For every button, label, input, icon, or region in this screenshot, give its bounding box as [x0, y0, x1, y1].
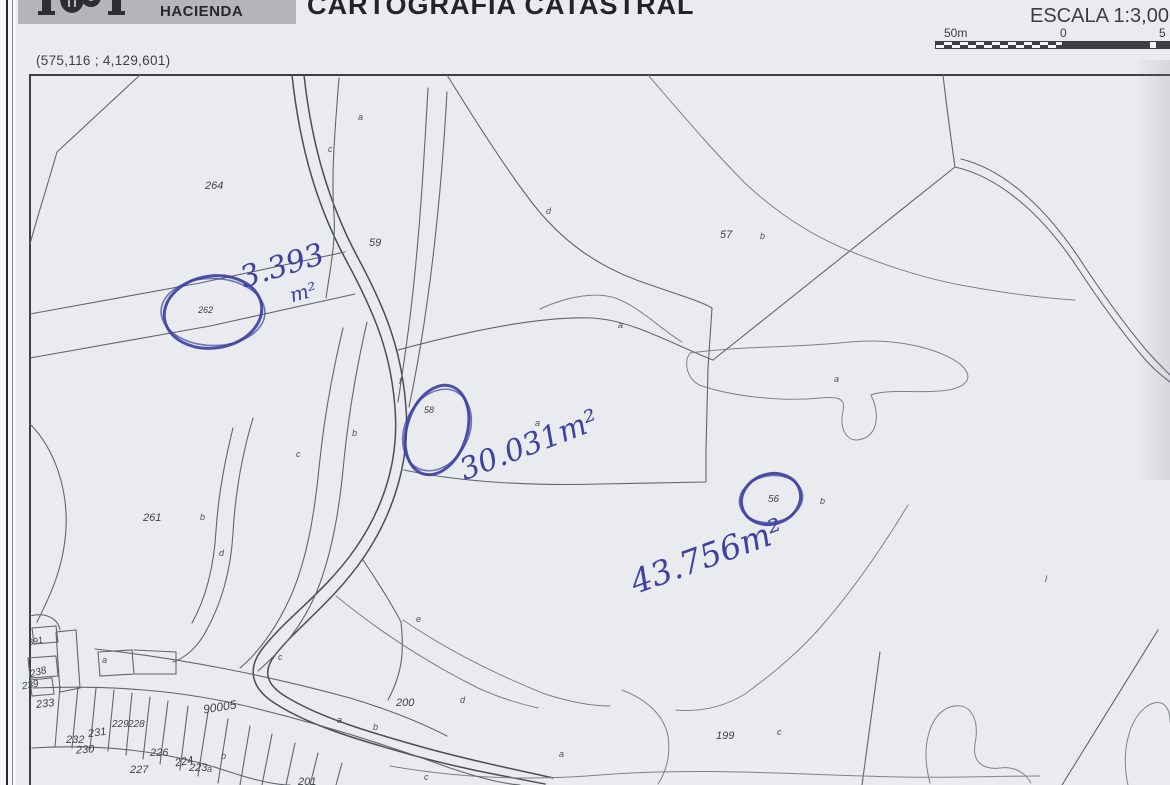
quality-letter-a: a — [559, 749, 564, 759]
quality-letter-a: a — [207, 764, 212, 774]
quality-letter-d: d — [546, 206, 551, 216]
parcel-number-223: 223 — [189, 762, 207, 774]
handwritten-area-43.756m²: 43.756m² — [625, 510, 789, 601]
parcel-number-57: 57 — [720, 229, 732, 241]
quality-letter-a: a — [102, 655, 107, 665]
quality-letter-f: f — [399, 376, 402, 386]
parcel-number-56: 56 — [768, 494, 779, 505]
scale-bar-notch — [1150, 42, 1156, 48]
parcel-number-58: 58 — [424, 405, 434, 415]
scan-edge-line — [6, 0, 8, 785]
parcel-number-228: 228 — [128, 719, 145, 730]
parcel-number-264: 264 — [205, 180, 223, 192]
parcel-number-391: 391 — [27, 635, 44, 648]
quality-letter-c: c — [278, 652, 283, 662]
parcel-number-227: 227 — [130, 764, 148, 776]
quality-letter-b: b — [760, 231, 765, 241]
parcel-number-238: 238 — [29, 665, 48, 680]
quality-letter-a: a — [618, 320, 623, 330]
quality-letter-c: c — [424, 772, 429, 782]
quality-letter-c: c — [296, 449, 301, 459]
parcel-number-201: 201 — [298, 776, 316, 785]
quality-letter-c: c — [328, 144, 333, 154]
ministry-banner: HACIENDA — [18, 0, 296, 24]
parcel-number-229: 229 — [112, 719, 129, 730]
handwritten-area-m²: m² — [287, 277, 319, 307]
parcel-number-226: 226 — [150, 747, 168, 759]
map-labels-layer: 2645926257585626120019990005233232231230… — [0, 0, 1170, 785]
scale-bar-checker — [935, 41, 1063, 49]
scale-label: ESCALA 1:3,00 — [1030, 5, 1169, 28]
scalebar-left-label: 50m — [944, 26, 967, 40]
page-title: CARTOGRAFIA CATASTRAL — [307, 0, 694, 21]
parcel-number-230: 230 — [76, 743, 95, 756]
paper-left-margin — [0, 0, 16, 785]
quality-letter-b: b — [820, 496, 825, 506]
parcel-number-199: 199 — [716, 730, 734, 742]
parcel-number-200: 200 — [396, 697, 414, 709]
quality-letter-b: b — [200, 512, 205, 522]
parcel-number-231: 231 — [87, 726, 107, 740]
banner-text: HACIENDA — [160, 3, 243, 20]
quality-letter-l: l — [1045, 574, 1047, 584]
parcel-number-239: 239 — [21, 679, 39, 693]
scan-shadow-right — [1136, 60, 1170, 480]
quality-letter-a: a — [358, 112, 363, 122]
quality-letter-c: c — [777, 727, 782, 737]
map-corner-coordinates: (575,116 ; 4,129,601) — [36, 53, 170, 68]
scan-edge-line-2 — [12, 0, 13, 785]
scalebar-right-label: 5 — [1159, 26, 1166, 40]
parcel-number-59: 59 — [369, 237, 381, 249]
scale-bar-solid — [1063, 41, 1170, 49]
quality-letter-d: d — [219, 548, 224, 558]
scanned-cadastral-map-page: 2645926257585626120019990005233232231230… — [0, 0, 1170, 785]
coat-of-arms-icon — [28, 0, 138, 23]
handwritten-area-30.031m²: 30.031m² — [455, 403, 603, 488]
quality-letter-a: a — [337, 715, 342, 725]
parcel-number-233: 233 — [35, 697, 55, 711]
quality-letter-b: b — [221, 751, 226, 761]
scale-bar — [935, 41, 1170, 49]
quality-letter-a: a — [834, 374, 839, 384]
parcel-number-261: 261 — [143, 512, 161, 524]
quality-letter-b: b — [373, 722, 378, 732]
quality-letter-d: d — [460, 695, 465, 705]
parcel-number-262: 262 — [198, 305, 213, 315]
quality-letter-b: b — [352, 428, 357, 438]
parcel-number-90005: 90005 — [202, 697, 237, 716]
quality-letter-e: e — [416, 614, 421, 624]
scalebar-center-label: 0 — [1060, 26, 1067, 40]
